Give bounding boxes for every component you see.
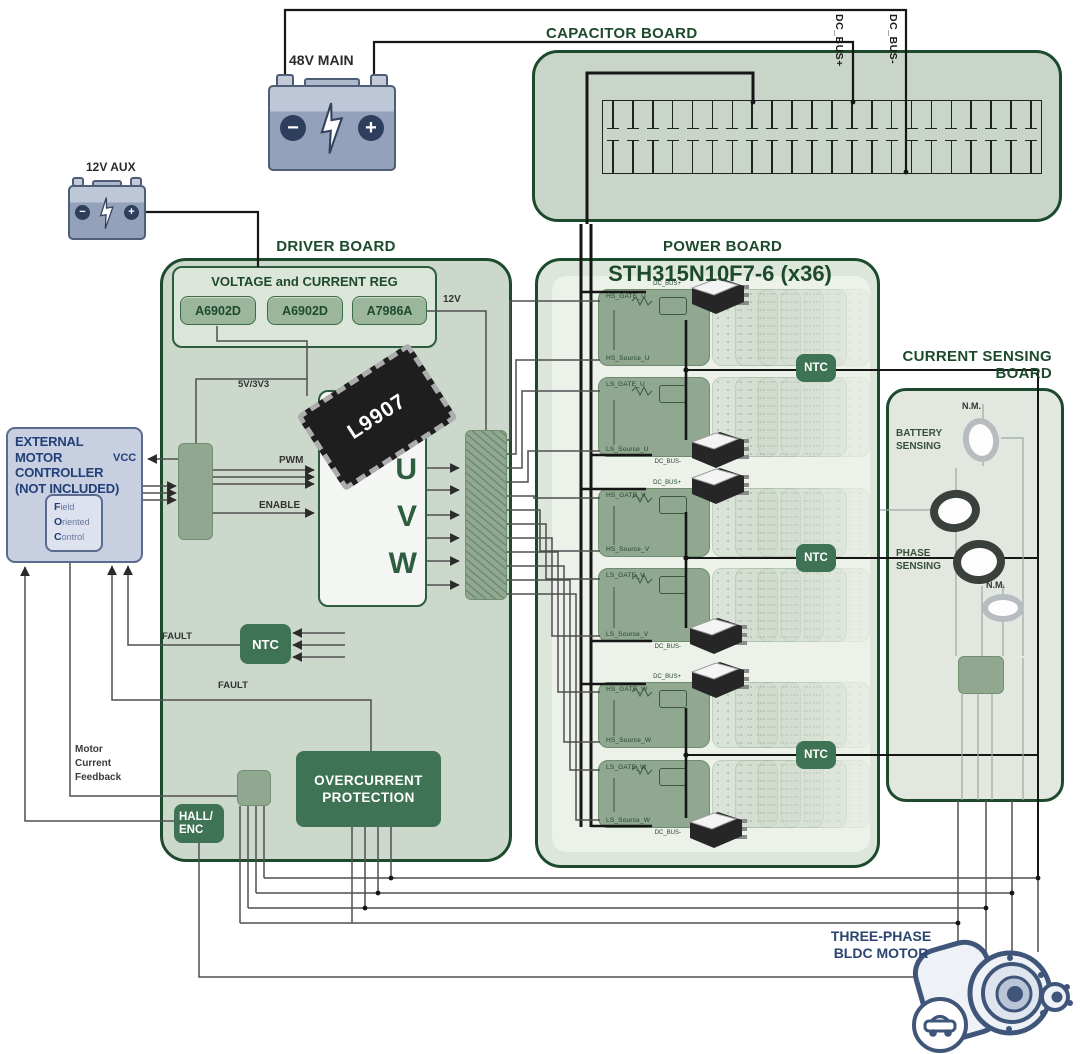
dc-bus-plus-label: DC_BUS+: [653, 480, 681, 486]
phase-sensing-label: PHASE SENSING: [896, 547, 941, 573]
lightning-icon: [312, 100, 352, 157]
battery-sensing-label: BATTERY SENSING: [896, 427, 942, 453]
external-motor-controller: EXTERNAL MOTOR CONTROLLER (NOT INCLUDED)…: [6, 427, 143, 563]
overcurrent-protection-box: OVERCURRENT PROTECTION: [296, 751, 441, 827]
rail-5v-label: 5V/3V3: [238, 379, 269, 390]
controller-connector: [178, 443, 213, 540]
mosfet-array-ghost: [712, 682, 872, 748]
power-ntc-3: NTC: [796, 741, 836, 769]
driver-board-title: DRIVER BOARD: [160, 238, 512, 255]
power-block-hs-v: DC_BUS+ HS_GATE_V HS_Source_V: [598, 488, 710, 557]
chip-a6902d-2: A6902D: [267, 296, 343, 325]
feedback-connector: [237, 770, 271, 806]
aux-battery: − +: [68, 185, 146, 240]
phase-v-label: V: [397, 502, 417, 532]
plus-terminal-icon: +: [358, 115, 384, 141]
minus-terminal-icon: −: [280, 115, 306, 141]
vcc-label: VCC: [113, 452, 136, 464]
dc-bus-plus-label: DC_BUS+: [653, 674, 681, 680]
dc-bus-plus-label: DC_BUS+: [833, 14, 845, 67]
enable-label: ENABLE: [259, 500, 300, 511]
power-block-ls-u: DC_BUS- LS_GATE_U LS_Source_U: [598, 377, 710, 457]
nm-label-top: N.M.: [962, 401, 981, 411]
phase-u-label: U: [395, 455, 417, 485]
minus-terminal-icon: −: [75, 205, 90, 220]
power-block-hs-w: DC_BUS+ HS_GATE_W HS_Source_W: [598, 682, 710, 748]
lightning-icon: [95, 195, 119, 230]
mosfet-array-ghost: [712, 488, 872, 557]
power-block-ls-v: DC_BUS- LS_GATE_V LS_Source_V: [598, 568, 710, 642]
driver-ntc-box: NTC: [240, 624, 291, 664]
reg-title: VOLTAGE and CURRENT REG: [174, 274, 435, 289]
gate-driver-symbol: [659, 576, 687, 594]
gate-driver-symbol: [659, 768, 687, 786]
motor-feedback-label: Motor Current Feedback: [75, 743, 121, 785]
power-board-title: POWER BOARD: [663, 238, 782, 255]
chip-a6902d-1: A6902D: [180, 296, 256, 325]
aux-battery-label: 12V AUX: [86, 160, 136, 174]
dc-bus-minus-label: DC_BUS-: [655, 644, 681, 650]
capacitor-bank: [602, 100, 1042, 174]
power-block-ls-w: DC_BUS- LS_GATE_W LS_Source_W: [598, 760, 710, 828]
rail-12v-label: 12V: [443, 294, 461, 305]
mosfet-array-ghost: [712, 568, 872, 642]
sensing-board-title: CURRENT SENSING BOARD: [900, 348, 1052, 382]
power-board-subtitle: STH315N10F7-6 (x36): [575, 261, 865, 287]
dc-bus-minus-label: DC_BUS-: [887, 14, 899, 64]
mosfet-array-ghost: [712, 289, 872, 366]
gate-signal-connector: [465, 430, 507, 600]
power-ntc-1: NTC: [796, 354, 836, 382]
gate-driver-symbol: [659, 385, 687, 403]
main-battery-label: 48V MAIN: [289, 52, 354, 68]
nm-toroid-bottom: [982, 594, 1024, 622]
foc-box: Field Oriented Control: [45, 494, 103, 552]
car-icon: [914, 999, 966, 1051]
power-block-hs-u: DC_BUS+ HS_GATE_U HS_Source_U: [598, 289, 710, 366]
fault-ntc-label: FAULT: [162, 631, 192, 642]
fault-ocp-label: FAULT: [218, 680, 248, 691]
power-ntc-2: NTC: [796, 544, 836, 572]
chip-a7986a: A7986A: [352, 296, 427, 325]
pwm-label: PWM: [279, 455, 303, 466]
gate-driver-symbol: [659, 690, 687, 708]
mosfet-array-ghost: [712, 377, 872, 457]
capacitor-board-title: CAPACITOR BOARD: [546, 25, 697, 42]
sensing-connector: [958, 656, 1004, 694]
gate-driver-symbol: [659, 297, 687, 315]
nm-label-bottom: N.M.: [986, 580, 1005, 590]
dc-bus-minus-label: DC_BUS-: [655, 459, 681, 465]
main-battery: − +: [268, 85, 396, 171]
hall-enc-box: HALL/ ENC: [174, 804, 224, 843]
mosfet-array-ghost: [712, 760, 872, 828]
phase-w-label: W: [389, 549, 417, 579]
motor-label: THREE-PHASE BLDC MOTOR: [822, 928, 940, 962]
gate-driver-symbol: [659, 496, 687, 514]
plus-terminal-icon: +: [124, 205, 139, 220]
dc-bus-minus-label: DC_BUS-: [655, 830, 681, 836]
